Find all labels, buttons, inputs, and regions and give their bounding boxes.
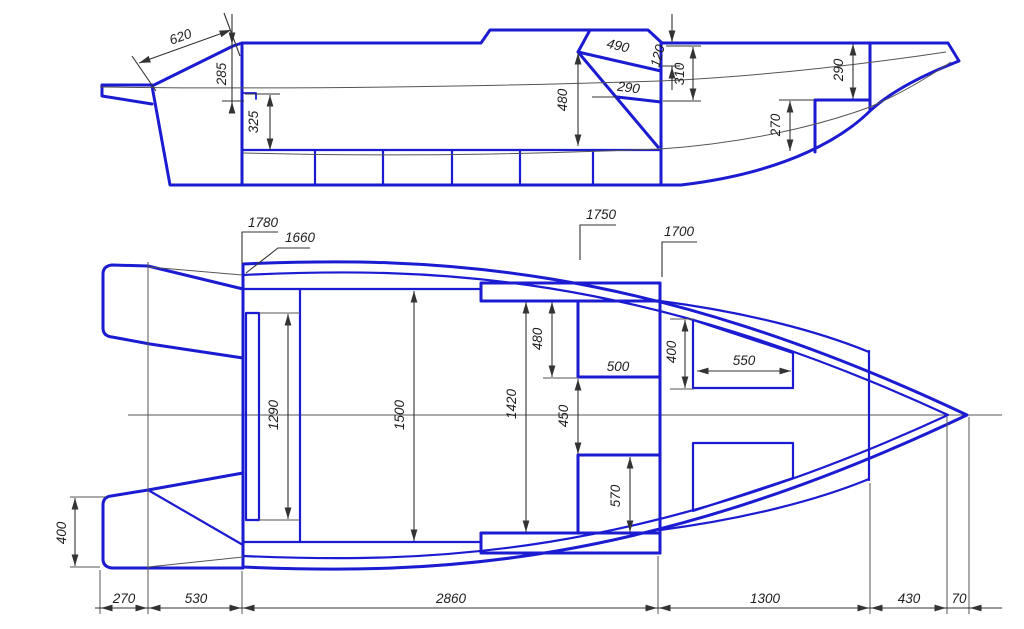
callout-1700: 1700 [664,224,695,239]
dim-500: 500 [607,359,630,374]
platform-top [103,265,243,358]
dim-285: 285 [214,62,229,86]
dim-120: 120 [647,43,667,69]
dim-270-side: 270 [768,113,783,137]
dim-1420: 1420 [504,388,519,419]
dim-400-stern: 400 [54,521,69,544]
chain-430: 430 [898,591,921,606]
dim-325: 325 [246,110,261,133]
chain-530: 530 [185,591,208,606]
bow-seat-bottom [693,443,793,511]
platform-bottom-seam [148,490,243,545]
side-hull-geometry [100,30,959,185]
side-dimensions: 620 285 325 480 490 290 120 [132,13,853,151]
callout-1750: 1750 [586,207,617,222]
blueprint-page: 620 285 325 480 490 290 120 [0,0,1024,629]
boat-blueprint-canvas: 620 285 325 480 490 290 120 [0,0,1024,629]
callout-1660: 1660 [285,230,316,245]
dim-480-side: 480 [555,88,570,111]
platform-bottom-thin-seam [148,557,243,567]
dim-1290: 1290 [266,399,281,430]
chain-70: 70 [951,591,967,606]
side-view: 620 285 325 480 490 290 120 [100,13,959,185]
dim-550: 550 [733,353,756,368]
chain-1300: 1300 [750,591,781,606]
dimension-chain: 270 530 2860 1300 430 70 [95,262,1002,614]
chain-extension-lines [100,262,969,614]
transom-step-box [246,313,259,520]
chain-2860: 2860 [435,591,467,606]
leader-1700 [662,242,697,277]
platform-bottom [103,473,243,568]
dim-490: 490 [605,36,631,56]
dim-1500: 1500 [392,399,407,430]
dim-290-bow: 290 [831,58,846,82]
leader-1780 [242,232,278,264]
dim-450: 450 [556,404,571,427]
leader-1660 [246,248,310,273]
dim-290-mid: 290 [615,79,641,97]
dim-310: 310 [672,62,687,85]
dim-480-plan: 480 [530,327,545,350]
leader-1750 [580,225,616,260]
dim-400-bow: 400 [664,340,679,363]
chain-270: 270 [112,591,136,606]
callout-1780: 1780 [248,215,279,230]
dim-570: 570 [608,484,623,507]
plan-view: 1780 1660 1750 1700 1290 1500 1420 480 5… [54,207,1002,569]
